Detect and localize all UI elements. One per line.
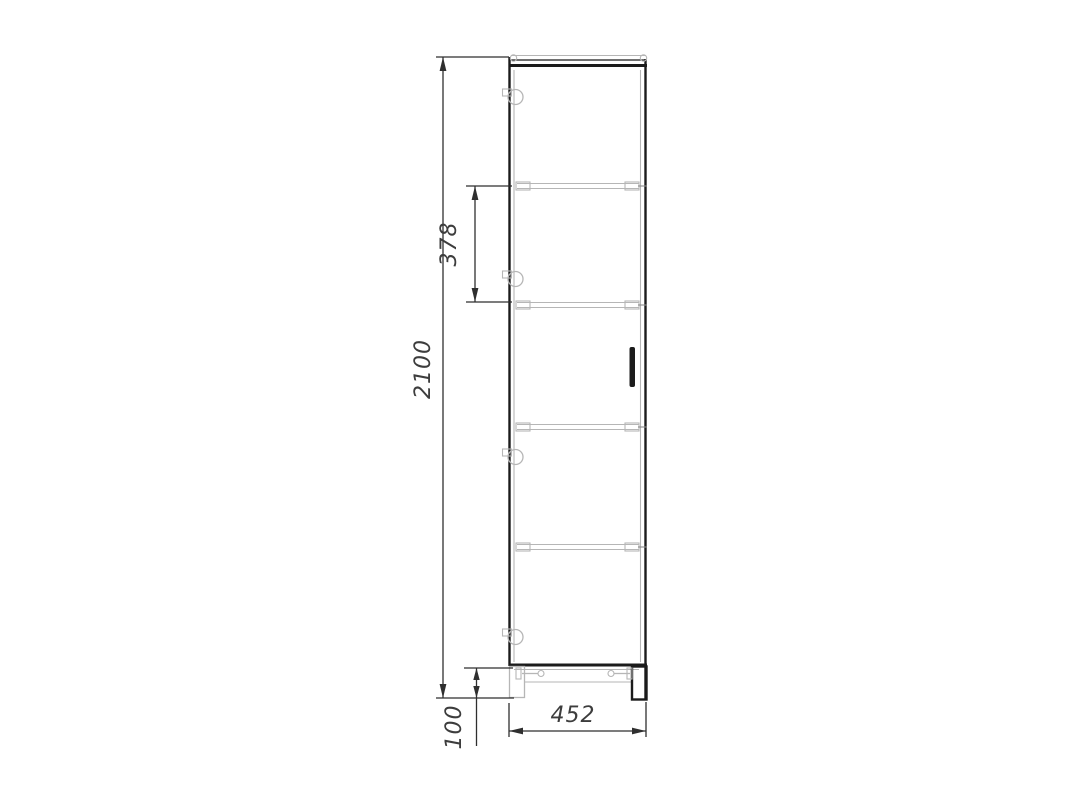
- fastener-cam: [608, 671, 614, 677]
- arrowhead-left: [509, 728, 523, 735]
- dimension-label-overall-height: 2100: [411, 339, 436, 399]
- dimension-overall-height: 2100: [411, 57, 514, 698]
- arrowhead-down: [473, 686, 479, 698]
- drawing-canvas: 2100 378 100 452: [0, 0, 1067, 800]
- hinge-1: [503, 89, 524, 105]
- hinge-4: [503, 629, 524, 645]
- door-handle: [630, 347, 636, 387]
- dimension-plinth-height: 100: [442, 668, 513, 750]
- shelf-3: [516, 423, 647, 431]
- arrowhead-right: [632, 728, 646, 735]
- dimension-label-shelf-spacing: 378: [437, 222, 462, 267]
- technical-drawing: 2100 378 100 452: [0, 0, 1067, 800]
- hinge-3: [503, 449, 524, 465]
- arrowhead-up: [440, 57, 447, 71]
- dimension-overall-width: 452: [509, 702, 646, 737]
- arrowhead-down: [472, 288, 479, 302]
- dimension-label-overall-width: 452: [551, 703, 596, 728]
- plinth: [510, 667, 647, 700]
- shelf-2: [516, 301, 647, 309]
- fastener-cam: [538, 671, 544, 677]
- left-leg: [510, 667, 525, 698]
- dimension-shelf-spacing: 378: [437, 186, 512, 302]
- arrowhead-up: [472, 186, 479, 200]
- arrowhead-down: [440, 684, 447, 698]
- hinge-2: [503, 271, 524, 287]
- shelf-4: [516, 543, 647, 551]
- dimension-label-plinth-height: 100: [442, 705, 467, 750]
- top-panel: [509, 55, 647, 66]
- shelf-1: [516, 182, 647, 190]
- arrowhead-up: [473, 668, 479, 680]
- cabinet: [503, 55, 648, 700]
